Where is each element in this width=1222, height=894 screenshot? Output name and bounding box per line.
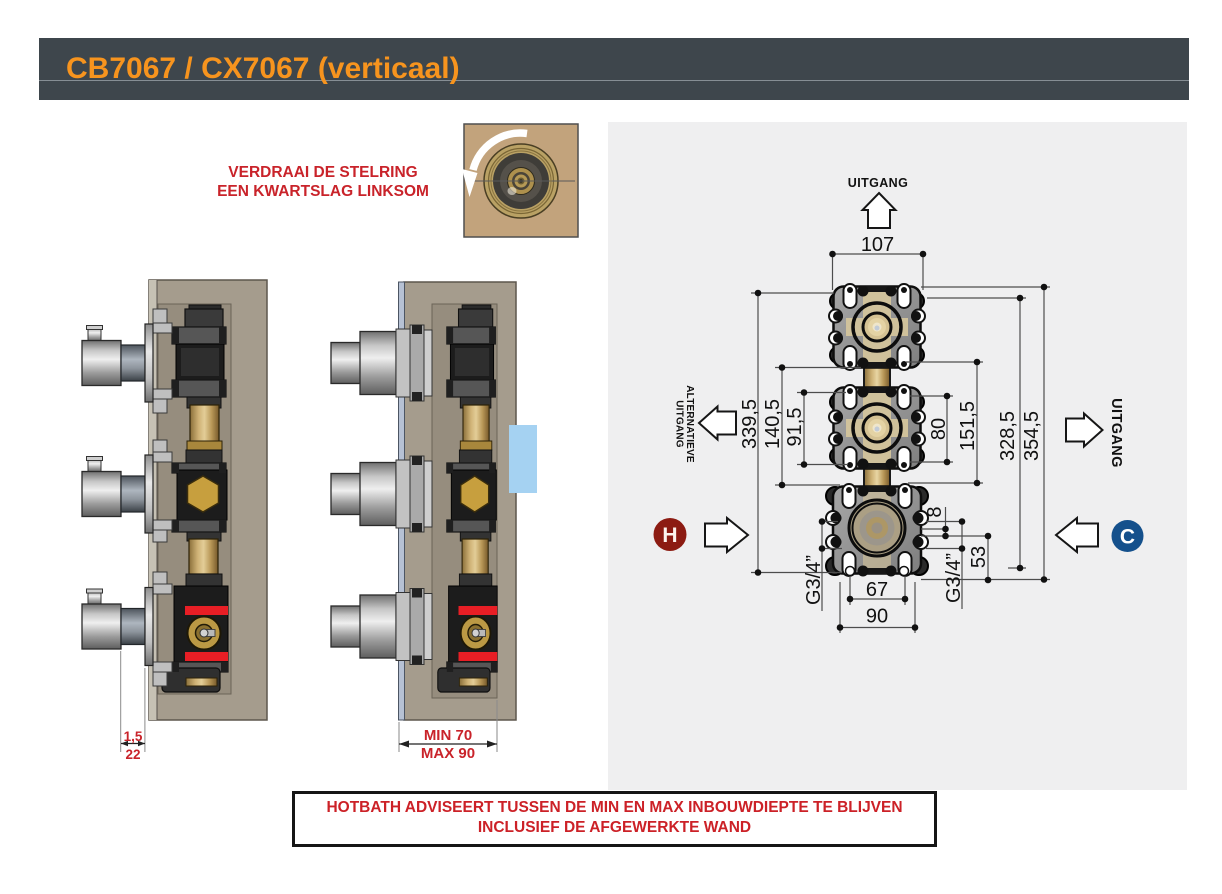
svg-text:ALTERNATIEVEUITGANG: ALTERNATIEVEUITGANG [674, 385, 696, 463]
svg-text:MIN 70: MIN 70 [424, 727, 472, 744]
svg-text:MAX 90: MAX 90 [421, 745, 475, 762]
svg-text:91,5: 91,5 [784, 408, 806, 447]
svg-text:354,5: 354,5 [1021, 411, 1043, 461]
svg-text:90: 90 [866, 606, 888, 628]
svg-text:UITGANG: UITGANG [848, 176, 908, 190]
svg-text:67: 67 [866, 579, 888, 601]
svg-text:107: 107 [861, 234, 894, 256]
svg-text:328,5: 328,5 [997, 411, 1019, 461]
svg-text:140,5: 140,5 [762, 399, 784, 449]
svg-text:C: C [1120, 526, 1135, 549]
svg-text:53: 53 [968, 546, 990, 568]
svg-text:8: 8 [924, 506, 946, 517]
svg-text:H: H [662, 524, 677, 547]
svg-text:UITGANG: UITGANG [1108, 398, 1124, 468]
svg-text:1,5: 1,5 [124, 729, 143, 744]
svg-text:80: 80 [928, 418, 950, 440]
svg-text:G3/4”: G3/4” [943, 553, 965, 603]
svg-text:151,5: 151,5 [957, 401, 979, 451]
svg-text:22: 22 [125, 747, 140, 762]
svg-text:339,5: 339,5 [739, 399, 761, 449]
svg-text:G3/4”: G3/4” [803, 555, 825, 605]
